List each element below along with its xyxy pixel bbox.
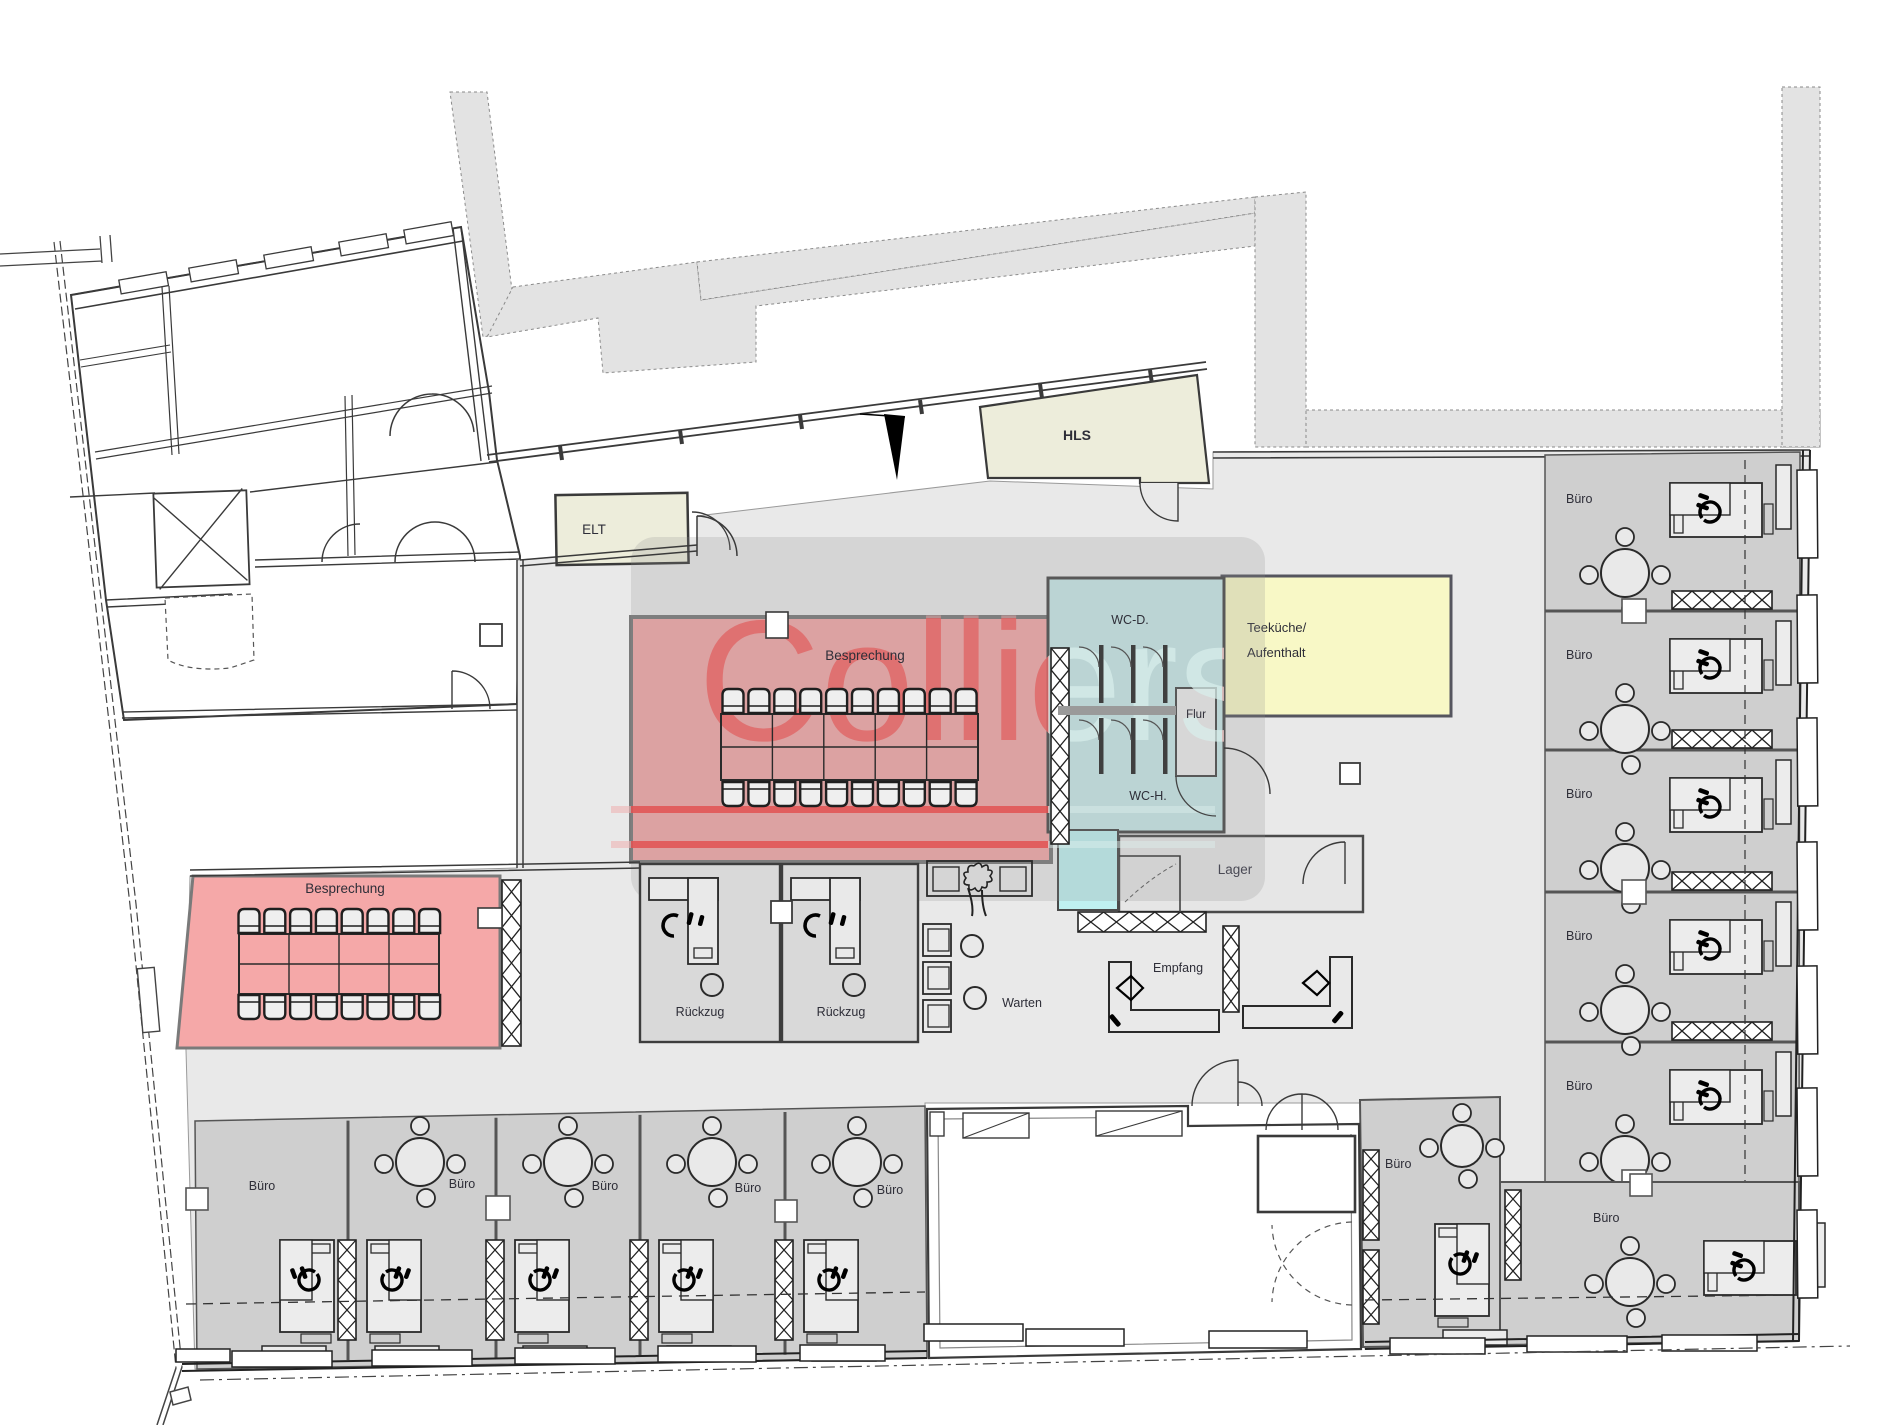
svg-text:Büro: Büro bbox=[1566, 492, 1592, 506]
svg-text:Büro: Büro bbox=[449, 1177, 475, 1191]
svg-text:Büro: Büro bbox=[735, 1181, 761, 1195]
svg-text:Büro: Büro bbox=[249, 1179, 275, 1193]
svg-text:Büro: Büro bbox=[1566, 787, 1592, 801]
svg-text:HLS: HLS bbox=[1063, 427, 1091, 443]
svg-text:ELT: ELT bbox=[582, 522, 606, 537]
svg-text:Büro: Büro bbox=[1566, 648, 1592, 662]
svg-text:Besprechung: Besprechung bbox=[825, 648, 905, 663]
svg-text:Büro: Büro bbox=[1593, 1211, 1619, 1225]
svg-text:WC-D.: WC-D. bbox=[1111, 613, 1149, 627]
svg-text:Lager: Lager bbox=[1218, 862, 1253, 877]
svg-text:Büro: Büro bbox=[1566, 929, 1592, 943]
svg-text:WC-H.: WC-H. bbox=[1129, 789, 1167, 803]
svg-text:Besprechung: Besprechung bbox=[305, 881, 385, 896]
svg-text:Büro: Büro bbox=[1385, 1157, 1411, 1171]
svg-text:Empfang: Empfang bbox=[1153, 961, 1203, 975]
svg-text:Büro: Büro bbox=[877, 1183, 903, 1197]
svg-text:Büro: Büro bbox=[592, 1179, 618, 1193]
svg-text:Rückzug: Rückzug bbox=[817, 1005, 866, 1019]
svg-text:Büro: Büro bbox=[1566, 1079, 1592, 1093]
svg-text:Rückzug: Rückzug bbox=[676, 1005, 725, 1019]
svg-text:Warten: Warten bbox=[1002, 996, 1042, 1010]
svg-text:Flur: Flur bbox=[1186, 709, 1206, 721]
